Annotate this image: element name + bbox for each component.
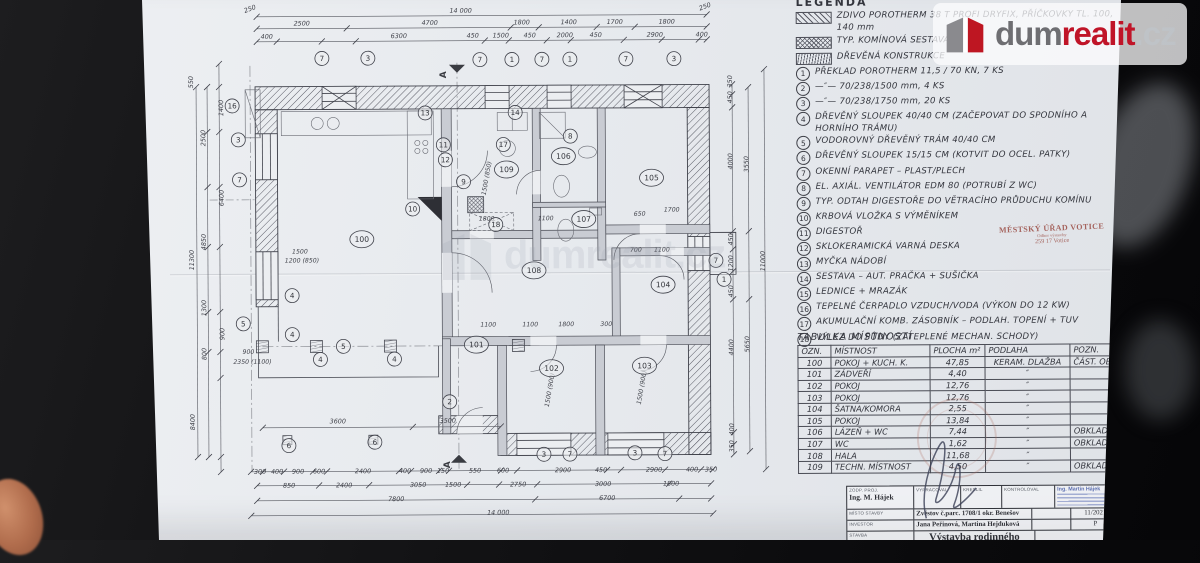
drafted-label: VYPRACOVAL xyxy=(916,487,958,492)
room-table-cell: ″ xyxy=(985,414,1070,426)
room-table-cell: OBKLAD xyxy=(1070,425,1143,437)
legend-item-number: 7 xyxy=(796,166,810,180)
dimension-label: 450 xyxy=(590,31,602,39)
dumrealit-icon-ghost xyxy=(438,227,496,285)
legend-item-number: 16 xyxy=(797,302,811,316)
legend-item-17: 17AKUMULAČNÍ KOMB. ZÁSOBNÍK – PODLAH. TO… xyxy=(797,316,1127,332)
investor-label: INVESTOR xyxy=(849,521,911,526)
legend-item-6: 6DŘEVĚNÝ SLOUPEK 15/15 CM (KOTVIT DO OCE… xyxy=(796,150,1126,166)
dimension-label: 11300 xyxy=(188,250,196,270)
legend-item-label: DŘEVĚNÝ SLOUPEK 40/40 CM (ZAČEPOVAT DO S… xyxy=(815,110,1126,135)
dimension-label: 4850 xyxy=(200,234,208,250)
dimension-label: 900 xyxy=(218,328,226,340)
dimension-label: 6400 xyxy=(218,190,226,206)
dimension-label: 350 xyxy=(728,440,736,452)
legend-ref-5: 5 xyxy=(241,319,246,328)
section-letter: A xyxy=(443,461,453,468)
legend-ref-2: 2 xyxy=(447,397,452,406)
center-watermark: dumrealit.cz xyxy=(438,225,726,285)
room-table-cell: 108 xyxy=(798,450,831,462)
dimension-label: 600 xyxy=(313,467,325,475)
room-table-cell: POKOJ xyxy=(831,391,930,403)
dumrealit-icon xyxy=(943,12,987,56)
partition-102-103 xyxy=(595,345,605,455)
room-table-cell: ″ xyxy=(985,448,1070,460)
legend-item-number: 11 xyxy=(797,227,811,241)
legend-item-label: LEDNICE + MRAZÁK xyxy=(816,287,907,299)
entry-door-gap xyxy=(457,416,483,434)
dimension-label: 450 xyxy=(595,466,607,474)
fingertip xyxy=(0,471,53,562)
project-value: Výstavba rodinného domku xyxy=(916,532,1032,547)
legend-item-label: PŘEKLAD POROTHERM 11,5 / 70 KN, 7 KS xyxy=(815,66,1004,79)
dimension-label: 7800 xyxy=(388,495,404,503)
legend-item-4: 4DŘEVĚNÝ SLOUPEK 40/40 CM (ZAČEPOVAT DO … xyxy=(796,110,1126,135)
room-number-103: 103 xyxy=(637,361,652,370)
dimension-label: 5650 xyxy=(743,336,751,352)
dimension-label: 6300 xyxy=(391,32,407,40)
room-table-cell: ŠATNA/KOMORA xyxy=(831,403,930,415)
designer-stamp-lines xyxy=(1057,493,1112,505)
legend-item-number: 5 xyxy=(796,136,810,150)
legend-item-number: 1 xyxy=(796,67,810,81)
dimension-label: 300 xyxy=(254,468,266,476)
legend-item-number: 10 xyxy=(797,212,811,226)
dimension-label: 2750 xyxy=(510,480,526,488)
legend-item-8: 8EL. AXIÁL. VENTILÁTOR EDM 80 (POTRUBÍ Z… xyxy=(797,180,1127,196)
window-left-1 xyxy=(255,134,277,180)
photo-scene: 14 0002502502500470018001400170018004006… xyxy=(0,0,1200,540)
dimension-label: 250 xyxy=(698,1,712,13)
dimension-label: 2400 xyxy=(355,467,371,475)
dimension-label: 450 xyxy=(727,285,735,297)
dimension-label: 450 xyxy=(524,31,536,39)
legend-item-1: 1PŘEKLAD POROTHERM 11,5 / 70 KN, 7 KS xyxy=(796,65,1126,81)
designer-stamp-name: Ing. Martin Hájek xyxy=(1057,486,1117,492)
timber-post xyxy=(256,341,268,353)
room-table-cell xyxy=(1070,448,1143,460)
dimension-label: 400 xyxy=(271,468,283,476)
legend-ref-13: 13 xyxy=(421,108,430,117)
toilet-106 xyxy=(554,175,570,197)
dimension-label: 400 xyxy=(261,33,273,41)
dimension-label: 2400 xyxy=(336,481,352,489)
window-top-2 xyxy=(485,85,509,108)
blueprint-paper: 14 0002502502500470018001400170018004006… xyxy=(0,0,1200,540)
dimension-label: 2500 xyxy=(294,20,310,28)
dimension-label: 1500 xyxy=(445,481,461,489)
date-value: 11/2021 xyxy=(1073,509,1117,516)
dimension-label: 3500 xyxy=(440,417,456,425)
dimension-label: 11000 xyxy=(759,251,767,271)
legend-ref-17: 17 xyxy=(499,140,508,149)
legend-items: 1PŘEKLAD POROTHERM 11,5 / 70 KN, 7 KS2—″… xyxy=(796,65,1127,347)
plan-note: 1100 xyxy=(522,321,538,328)
room-table-header: OZN. xyxy=(798,345,831,357)
project-label: STAVBA xyxy=(849,532,911,537)
timber-post xyxy=(384,340,396,352)
legend-ref-4: 4 xyxy=(290,291,295,300)
dimension-label: 2900 xyxy=(555,466,571,474)
legend-swatch-wood xyxy=(796,52,832,64)
logo-dum: dum xyxy=(995,15,1062,52)
room-table-cell: ″ xyxy=(985,367,1070,379)
timber-post xyxy=(310,340,322,352)
plan-note: 1100 xyxy=(480,322,496,329)
washbasin xyxy=(578,146,596,158)
dimension-label: 400 xyxy=(696,30,708,38)
room-table-cell: ″ xyxy=(985,425,1070,437)
legend-item-number: 2 xyxy=(796,82,810,96)
plan-note: 1500 (900) xyxy=(544,372,557,407)
dimension-label: 450 xyxy=(726,91,734,103)
legend-ref-7: 7 xyxy=(568,450,573,459)
window-left-2 xyxy=(256,252,278,300)
legend-item-2: 2—″— 70/238/1500 mm, 4 KS xyxy=(796,80,1126,96)
dimension-label: 250 xyxy=(243,3,257,15)
section-letter: A xyxy=(439,71,449,78)
dimension-label: 3550 xyxy=(742,156,750,172)
dimension-label: 600 xyxy=(497,466,509,474)
dimension-label: 850 xyxy=(283,482,295,490)
legend-ref-7: 7 xyxy=(320,54,325,63)
legend-ref-7: 7 xyxy=(624,54,629,63)
room-table-cell: 103 xyxy=(798,392,831,404)
room-table-cell: POKOJ xyxy=(831,380,930,392)
room-table-cell: 105 xyxy=(798,415,831,427)
dimension-label: 3600 xyxy=(330,417,346,425)
room-number-101: 101 xyxy=(469,340,484,349)
dimension-label: 1800 xyxy=(659,18,675,26)
legend-ref-1: 1 xyxy=(568,55,573,64)
plan-note: 2350 (1100) xyxy=(233,359,271,366)
legend-ref-12: 12 xyxy=(441,155,450,164)
legend-ref-16: 16 xyxy=(228,101,238,110)
dimension-label: 3000 xyxy=(595,480,611,488)
room-table-title: TABULKA MÍSTNOSTÍ xyxy=(797,330,1143,343)
dimension-label: 1500 xyxy=(493,31,509,39)
legend-item-label: —″— 70/238/1500 mm, 4 KS xyxy=(815,81,945,93)
legend-item-label: TEPELNÉ ČERPADLO VZDUCH/VODA (VÝKON DO 1… xyxy=(816,301,1070,314)
legend-item-label: OKENNÍ PARAPET – PLAST/PLECH xyxy=(815,166,965,178)
legend-item-label: EL. AXIÁL. VENTILÁTOR EDM 80 (POTRUBÍ Z … xyxy=(816,180,1038,193)
logo-realit: realit xyxy=(1062,15,1135,52)
dimension-label: 400 xyxy=(728,423,736,435)
dimension-label: 2900 xyxy=(646,466,662,474)
room-number-100: 100 xyxy=(355,235,370,244)
legend-item-label: TYP. ODTAH DIGESTOŘE DO VĚTRACÍHO PRŮDUC… xyxy=(816,195,1092,208)
room-table-cell: 107 xyxy=(798,438,831,450)
resp-value: Ing. M. Hájek xyxy=(849,492,911,501)
plan-note: 900 xyxy=(243,349,255,356)
room-table-cell: TECHN. MÍSTNOST xyxy=(832,461,931,473)
watermark-realit: realit xyxy=(585,232,675,276)
room-table-cell: POKOJ + KUCH. K. xyxy=(831,356,930,368)
room-number-105: 105 xyxy=(644,173,659,182)
legend-item-number: 6 xyxy=(796,151,810,165)
room-table-cell: POKOJ xyxy=(831,414,930,426)
legend-ref-1: 1 xyxy=(510,55,515,64)
room-table-cell: OBKLAD xyxy=(1070,436,1143,448)
room-table-cell: OBKLAD xyxy=(1071,460,1144,472)
legend-item-number: 13 xyxy=(797,257,811,271)
window-top-1 xyxy=(322,86,356,109)
room-table-cell: 102 xyxy=(798,380,831,392)
legend-ref-11: 11 xyxy=(439,140,448,149)
dimension-label: 14 000 xyxy=(487,508,509,516)
window-top-4 xyxy=(624,85,662,108)
site-value: Zvěstov č.parc. 1708/1 okr. Benešov xyxy=(916,510,1029,518)
dimension-label: 4400 xyxy=(727,339,735,355)
legend-ref-3: 3 xyxy=(633,448,638,457)
legend-item-14: 14SESTAVA – AUT. PRAČKA + SUŠIČKA xyxy=(797,270,1127,286)
legend-ref-6: 6 xyxy=(373,438,378,447)
legend-swatch-label: DŘEVĚNÁ KONSTRUKCE xyxy=(837,51,945,63)
dimension-label: 350 xyxy=(705,465,717,473)
partition-107-top xyxy=(533,202,606,207)
legend-ref-4: 4 xyxy=(290,330,295,339)
plan-note: 1500 (900) xyxy=(636,370,649,405)
dimension-label: 2500 xyxy=(199,130,207,146)
plan-note: 1100 xyxy=(538,215,554,222)
room-table-cell: 100 xyxy=(798,357,831,369)
legend-ref-7: 7 xyxy=(540,55,545,64)
watermark-cz: .cz xyxy=(675,232,726,276)
dimension-label: 1300 xyxy=(200,300,208,316)
legend-ref-3: 3 xyxy=(366,54,371,63)
timber-post xyxy=(512,339,524,351)
legend-ref-9: 9 xyxy=(461,177,466,186)
room-number-107: 107 xyxy=(576,215,591,224)
dimension-label: 4700 xyxy=(422,19,438,27)
dimension-label: 1200 xyxy=(727,255,735,271)
legend-item-15: 15LEDNICE + MRAZÁK xyxy=(797,285,1127,301)
room-table-cell: ″ xyxy=(985,379,1070,391)
room-table-cell xyxy=(1070,402,1143,414)
partition-102-left xyxy=(497,345,507,455)
legend-swatch-brick xyxy=(796,12,832,24)
plan-note: 300 xyxy=(600,321,612,328)
section-flag-top xyxy=(449,65,465,73)
dimension-label: 900 xyxy=(292,468,304,476)
room-table-cell: ″ xyxy=(985,402,1070,414)
legend-item-label: SKLOKERAMICKÁ VARNÁ DESKA xyxy=(816,241,960,253)
legend-ref-7: 7 xyxy=(478,55,483,64)
plan-note: 1700 xyxy=(664,207,680,214)
legend-item-13: 13MYČKA NÁDOBÍ xyxy=(797,255,1127,271)
dimension-label: 400 xyxy=(399,467,411,475)
dimension-label: 800 xyxy=(200,348,208,360)
legend-item-7: 7OKENNÍ PARAPET – PLAST/PLECH xyxy=(796,165,1126,181)
kitchen-counter-side xyxy=(407,111,433,199)
faded-round-stamp xyxy=(917,398,997,478)
room-table-cell: 101 xyxy=(798,368,831,380)
legend-item-number: 17 xyxy=(797,317,811,331)
dimension-label: 900 xyxy=(420,467,432,475)
dimension-label: 550 xyxy=(187,76,195,88)
legend-swatch-chimney xyxy=(796,37,832,49)
logo-cz: .cz xyxy=(1135,15,1176,52)
checked-label: KONTROLOVAL xyxy=(1004,487,1052,492)
dimension-label: 1400 xyxy=(217,100,225,116)
legend-item-label: AKUMULAČNÍ KOMB. ZÁSOBNÍK – PODLAH. TOPE… xyxy=(816,316,1078,329)
room-table-cell: ″ xyxy=(986,460,1071,472)
legend-ref-3: 3 xyxy=(672,54,677,63)
section-flag-bottom xyxy=(451,455,467,463)
room-table-header: PLOCHA m² xyxy=(930,344,985,356)
room-table-cell: ZÁDVEŘÍ xyxy=(831,368,930,380)
dimension-label: 14 000 xyxy=(449,7,471,15)
investor-value: Jana Peřinová, Martina Hejduková xyxy=(916,521,1029,529)
room-table-cell: 104 xyxy=(798,403,831,415)
plan-note: 650 xyxy=(634,211,646,218)
dumrealit-logo: dumrealit.cz xyxy=(933,3,1187,65)
dimension-label: 1700 xyxy=(607,18,623,26)
room-table-cell: 47,85 xyxy=(930,356,985,368)
legend-item-label: VODOROVNÝ DŘEVĚNÝ TRÁM 40/40 CM xyxy=(815,135,995,148)
legend-item-number: 3 xyxy=(796,97,810,111)
plan-note: 1200 (850) xyxy=(285,257,319,264)
legend-ref-7: 7 xyxy=(663,449,668,458)
legend-ref-3: 3 xyxy=(236,135,241,144)
dimension-label: 3050 xyxy=(410,481,426,489)
dimension-label: 2000 xyxy=(557,31,573,39)
fireplace-insert xyxy=(418,197,442,221)
legend-item-label: DŘEVĚNÝ SLOUPEK 15/15 CM (KOTVIT DO OCEL… xyxy=(815,150,1070,163)
legend-item-9: 9TYP. ODTAH DIGESTOŘE DO VĚTRACÍHO PRŮDU… xyxy=(797,195,1127,211)
dimension-label: 1800 xyxy=(514,18,530,26)
room-table-header: PODLAHA xyxy=(985,344,1070,356)
legend-ref-5: 5 xyxy=(341,342,346,351)
stage-value: P xyxy=(1073,520,1117,527)
dimension-label: 1800 xyxy=(663,480,679,488)
dimension-label: 6700 xyxy=(599,494,615,502)
legend-ref-8: 8 xyxy=(568,132,573,141)
room-table-cell: 4,40 xyxy=(930,368,985,380)
legend-ref-4: 4 xyxy=(392,355,397,364)
room-table-cell: KERAM. DLAŽBA xyxy=(985,356,1070,368)
dimension-label: 1400 xyxy=(561,18,577,26)
dimension-label: 4000 xyxy=(726,153,734,169)
site-label: MÍSTO STAVBY xyxy=(849,510,911,515)
room-number-102: 102 xyxy=(544,364,559,373)
dimension-label: 2900 xyxy=(647,31,663,39)
room-table-cell: HALA xyxy=(831,449,930,461)
room-table-header: MÍSTNOST xyxy=(831,345,930,357)
legend-item-label: DIGESTOŘ xyxy=(816,226,863,238)
dimension-label: 400 xyxy=(686,465,698,473)
chimney xyxy=(468,197,484,213)
dimension-label: 450 xyxy=(467,32,479,40)
drawn-label: KRESLIL xyxy=(963,487,999,492)
plan-note: 1800 xyxy=(558,321,574,328)
room-table-cell: LÁZEŇ + WC xyxy=(831,426,930,438)
legend-item-number: 8 xyxy=(797,181,811,195)
legend-item-label: —″— 70/238/1750 mm, 20 KS xyxy=(815,96,950,108)
legend-item-label: KRBOVÁ VLOŽKA S VÝMĚNÍKEM xyxy=(816,211,959,223)
legend-ref-3: 3 xyxy=(542,450,547,459)
dimension-label: 8400 xyxy=(189,414,197,430)
legend-item-label: SESTAVA – AUT. PRAČKA + SUŠIČKA xyxy=(816,271,979,283)
legend-item-5: 5VODOROVNÝ DŘEVĚNÝ TRÁM 40/40 CM xyxy=(796,135,1126,151)
title-block: ZODP. PROJ. Ing. M. Hájek VYPRACOVAL KRE… xyxy=(846,484,1120,556)
legend-ref-7: 7 xyxy=(237,175,242,184)
room-number-109: 109 xyxy=(499,165,514,174)
legend-item-number: 4 xyxy=(796,112,810,126)
dimension-label: 450 xyxy=(727,233,735,245)
legend-ref-14: 14 xyxy=(511,108,521,117)
legend-item-number: 15 xyxy=(797,287,811,301)
room-table-cell: 109 xyxy=(799,461,832,473)
room-table-cell: 106 xyxy=(798,426,831,438)
legend-ref-4: 4 xyxy=(318,355,323,364)
dimension-label: 350 xyxy=(726,75,734,87)
legend-item-number: 9 xyxy=(797,197,811,211)
background-shadow xyxy=(1125,320,1195,420)
room-table-cell xyxy=(1070,413,1143,425)
legend-ref-6: 6 xyxy=(287,441,292,450)
plan-note: 1500 (850) xyxy=(481,161,494,196)
legend-item-16: 16TEPELNÉ ČERPADLO VZDUCH/VODA (VÝKON DO… xyxy=(797,301,1127,317)
room-table-cell: ″ xyxy=(985,437,1070,449)
room-table-cell: 12,76 xyxy=(930,379,985,391)
legend-ref-10: 10 xyxy=(408,204,418,213)
room-number-106: 106 xyxy=(556,152,571,161)
window-top-3 xyxy=(547,85,571,108)
dimension-label: 550 xyxy=(469,467,481,475)
legend-item-3: 3—″— 70/238/1750 mm, 20 KS xyxy=(796,95,1126,111)
legend-item-number: 12 xyxy=(797,242,811,256)
watermark-dum: dum xyxy=(504,233,586,277)
room-table-cell: WC xyxy=(831,438,930,450)
legend-item-label: MYČKA NÁDOBÍ xyxy=(816,257,887,269)
room-table-cell: ″ xyxy=(985,390,1070,402)
plan-note: 1500 xyxy=(292,249,308,256)
legend-item-number: 14 xyxy=(797,272,811,286)
kitchen-counter xyxy=(281,111,431,136)
